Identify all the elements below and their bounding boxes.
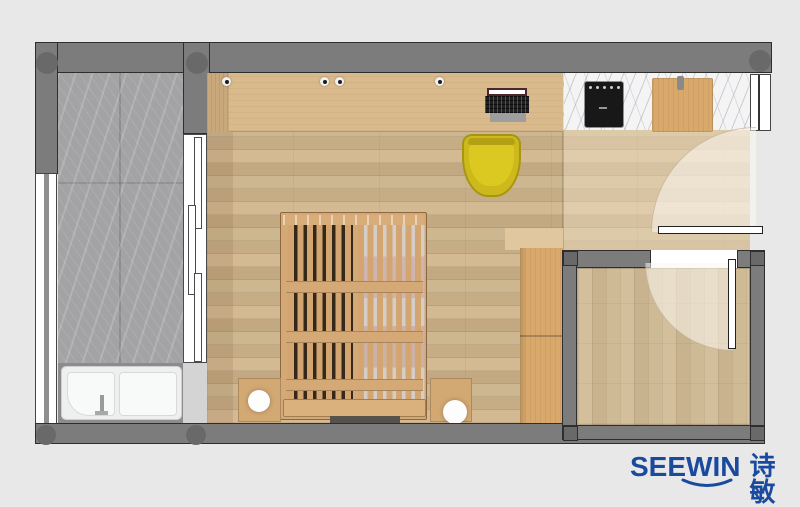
sliding-door-panel bbox=[194, 273, 202, 362]
chair-seat bbox=[469, 143, 514, 186]
bed-slats-right bbox=[358, 225, 425, 399]
entry-wall-left bbox=[562, 250, 577, 440]
bed-slats-left bbox=[288, 225, 353, 399]
window-right-mullion bbox=[758, 75, 760, 130]
wall-hook-icon bbox=[222, 77, 231, 86]
brand-logo-text-cn: 诗敏 bbox=[749, 453, 800, 505]
floor-left-shade bbox=[207, 130, 233, 423]
window-left-mullion bbox=[44, 174, 49, 425]
bathtub-right-basin bbox=[119, 372, 177, 416]
laptop-keyboard bbox=[485, 96, 529, 113]
door-leaf-entry bbox=[728, 259, 736, 349]
bed bbox=[280, 212, 427, 420]
lamp-right bbox=[443, 400, 467, 424]
door-leaf-main bbox=[658, 226, 763, 234]
floor-plan-canvas: SEEWIN 诗敏 bbox=[0, 0, 800, 507]
faucet-base bbox=[95, 411, 108, 415]
entry-column-tr bbox=[750, 251, 765, 266]
window-left bbox=[35, 173, 57, 426]
logo-swoosh-icon bbox=[681, 478, 733, 490]
bathtub bbox=[61, 366, 182, 420]
sliding-door bbox=[183, 134, 207, 363]
laptop-palmrest bbox=[490, 113, 526, 122]
column-top-3 bbox=[749, 50, 771, 72]
cooktop-mark bbox=[599, 107, 607, 109]
bathtub-left-basin bbox=[67, 372, 115, 416]
wall-top bbox=[35, 42, 772, 73]
chair-back bbox=[468, 138, 515, 145]
wardrobe-divider bbox=[520, 335, 563, 337]
bathroom-lower-strip bbox=[183, 363, 207, 423]
bed-head-rail bbox=[283, 215, 424, 225]
entry-column-bl bbox=[563, 426, 578, 441]
wall-hook-icon bbox=[435, 77, 444, 86]
cooktop bbox=[585, 82, 623, 127]
column-top-2 bbox=[186, 52, 208, 74]
window-right bbox=[750, 74, 771, 131]
entry-column-tl bbox=[563, 251, 578, 266]
bed-shadow bbox=[330, 416, 400, 423]
laptop-screen bbox=[487, 88, 527, 96]
column-top-1 bbox=[36, 52, 58, 74]
entry-column-br bbox=[750, 426, 765, 441]
bed-cross-rail bbox=[286, 281, 423, 293]
bathroom-marble-floor bbox=[58, 73, 183, 365]
faucet-icon bbox=[100, 395, 104, 412]
wardrobe bbox=[520, 248, 563, 423]
bed-footboard bbox=[283, 399, 426, 417]
column-bottom-2 bbox=[186, 425, 206, 445]
bed-cross-rail bbox=[286, 331, 423, 343]
wall-hook-icon bbox=[335, 77, 344, 86]
bed-cross-rail bbox=[286, 379, 423, 391]
cabinet-handle-icon bbox=[677, 76, 684, 90]
entry-wall-bottom bbox=[562, 425, 765, 440]
lamp-left bbox=[248, 390, 270, 412]
wardrobe-top-block bbox=[505, 228, 563, 250]
column-bottom-1 bbox=[36, 425, 56, 445]
entry-wall-right bbox=[750, 250, 765, 440]
wall-hook-icon bbox=[320, 77, 329, 86]
brand-logo-text-en: SEEWIN bbox=[630, 453, 740, 481]
